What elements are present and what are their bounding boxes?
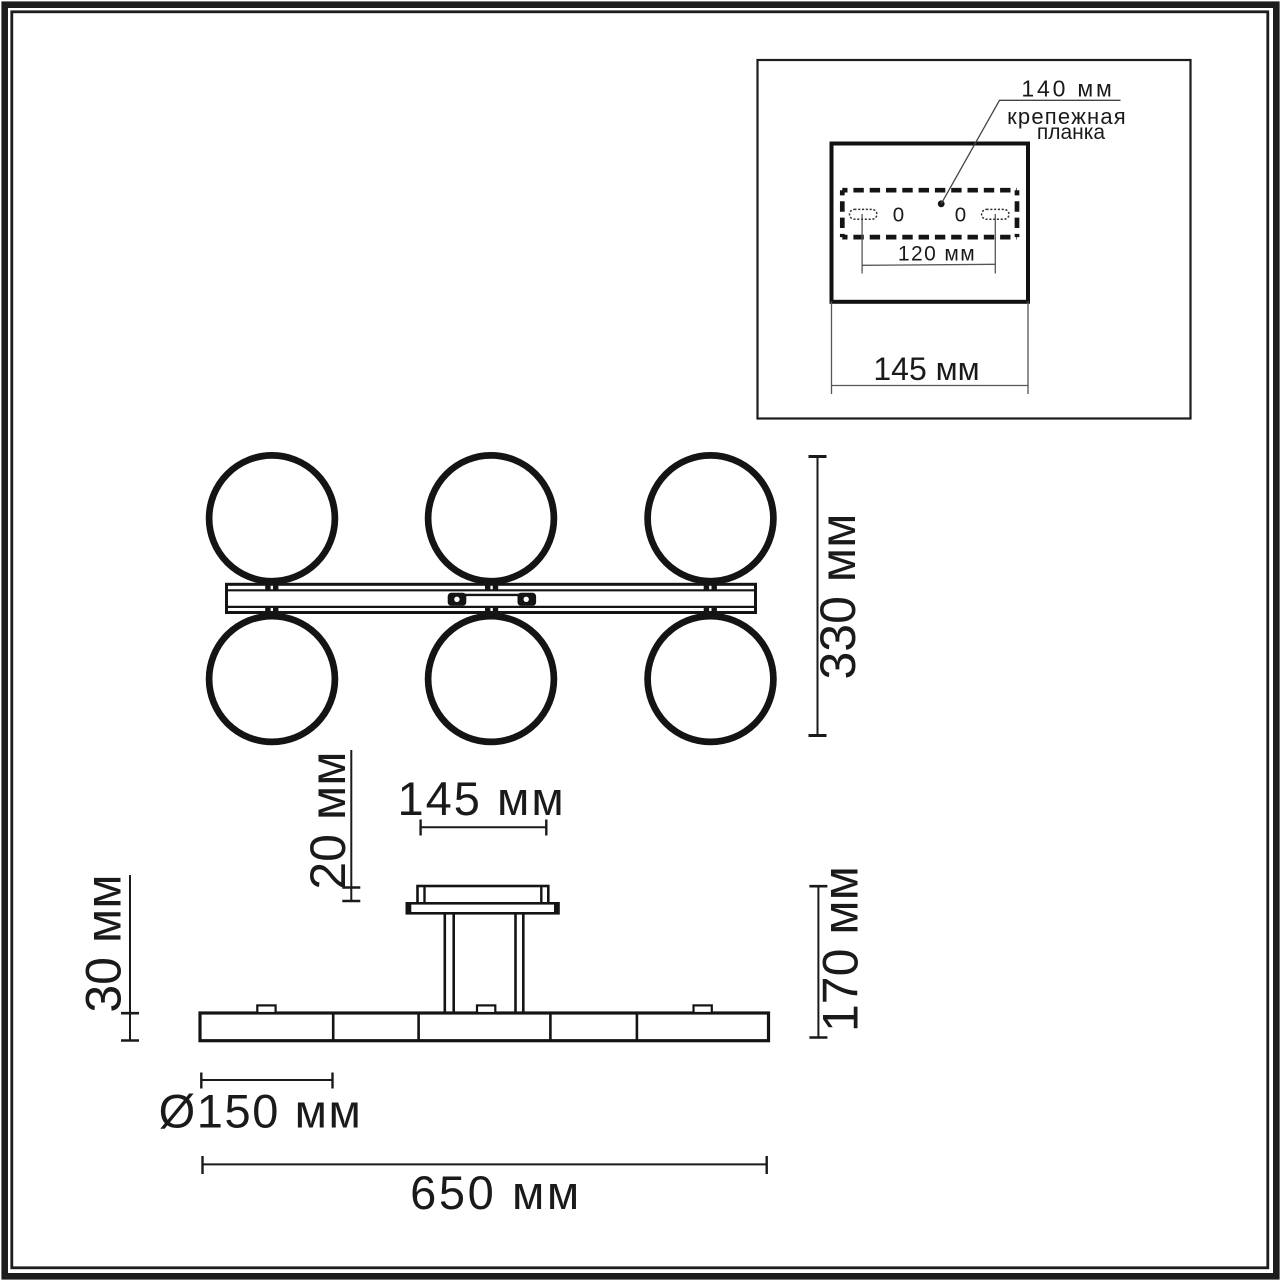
svg-text:30 мм: 30 мм (76, 874, 132, 1012)
svg-text:145 мм: 145 мм (398, 772, 566, 825)
svg-text:0: 0 (893, 204, 904, 227)
svg-text:650 мм: 650 мм (410, 1166, 582, 1219)
svg-text:планка: планка (1037, 121, 1106, 144)
svg-text:140 мм: 140 мм (1021, 75, 1114, 101)
svg-text:120 мм: 120 мм (898, 242, 976, 265)
svg-text:20 мм: 20 мм (300, 751, 356, 889)
svg-text:145 мм: 145 мм (873, 351, 979, 387)
svg-text:330 мм: 330 мм (810, 513, 866, 679)
svg-text:170 мм: 170 мм (813, 866, 869, 1032)
svg-text:0: 0 (955, 204, 966, 227)
svg-text:Ø150 мм: Ø150 мм (159, 1085, 363, 1138)
